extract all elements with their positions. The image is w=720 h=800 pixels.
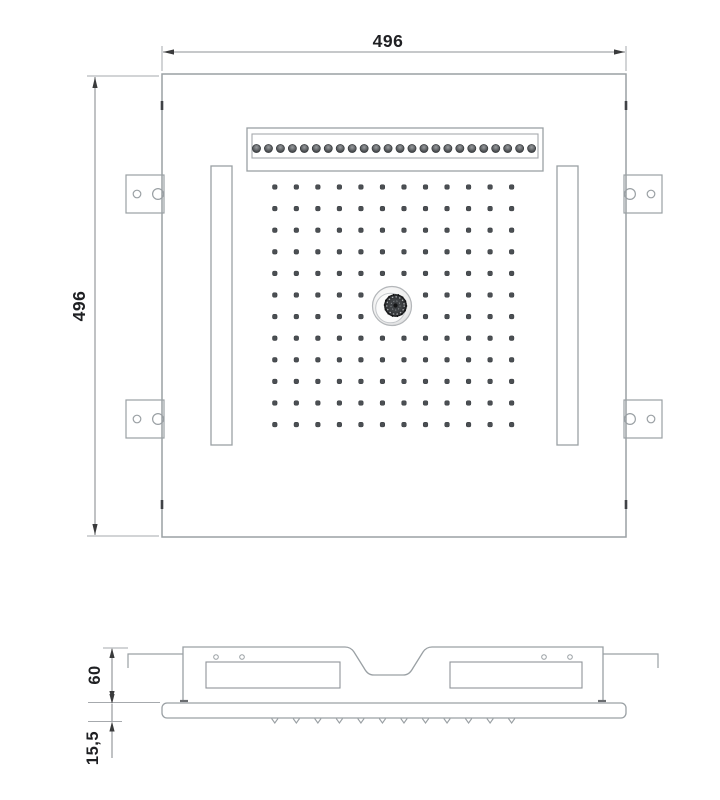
spray-nozzle [445, 271, 450, 276]
tab-hole-icon [647, 190, 655, 198]
waterfall-nozzle [312, 144, 320, 152]
spray-nozzle [337, 250, 342, 255]
spray-nozzle [316, 271, 321, 276]
spray-nozzle [316, 250, 321, 255]
spray-nozzle [294, 293, 299, 298]
spray-nozzle [488, 293, 493, 298]
spray-nozzle [466, 250, 471, 255]
spray-nozzle [466, 185, 471, 190]
spray-nozzle [423, 271, 428, 276]
spray-nozzle [380, 185, 385, 190]
spray-nozzle [445, 293, 450, 298]
spray-nozzle [488, 379, 493, 384]
waterfall-nozzle [384, 144, 392, 152]
spray-nozzle [509, 271, 514, 276]
spray-nozzle [423, 401, 428, 406]
spray-nozzle [402, 271, 407, 276]
spray-nozzle [488, 228, 493, 233]
spray-nozzle [294, 379, 299, 384]
spray-nozzle [402, 250, 407, 255]
spray-nozzle [402, 422, 407, 427]
side-nozzle-tick [422, 719, 428, 724]
waterfall-nozzle [264, 144, 272, 152]
waterfall-nozzle [348, 144, 356, 152]
spray-nozzle [445, 206, 450, 211]
waterfall-bar [247, 128, 543, 171]
spray-nozzle [488, 206, 493, 211]
spray-nozzle [337, 336, 342, 341]
spray-nozzle [488, 401, 493, 406]
waterfall-nozzle [396, 144, 404, 152]
spray-nozzle [316, 422, 321, 427]
spray-nozzle [466, 358, 471, 363]
spray-nozzle [316, 336, 321, 341]
spray-nozzle [488, 185, 493, 190]
side-nozzle-tick [272, 719, 278, 724]
waterfall-nozzle [252, 144, 260, 152]
spray-nozzle [380, 358, 385, 363]
side-nozzle-tick [465, 719, 471, 724]
spray-nozzle [423, 206, 428, 211]
dimension-plate-thickness: 15,5 [84, 694, 122, 765]
tab-hole-icon [133, 190, 141, 198]
dim-label-60: 60 [86, 665, 104, 684]
spray-nozzle [273, 422, 278, 427]
spray-nozzle [445, 185, 450, 190]
side-nozzle-tick [401, 719, 407, 724]
spray-nozzle [509, 336, 514, 341]
side-nozzle-ticks [272, 719, 515, 724]
spray-nozzle [380, 228, 385, 233]
spray-nozzle [423, 314, 428, 319]
spray-nozzle [402, 336, 407, 341]
spray-nozzle [294, 422, 299, 427]
spray-nozzle [273, 336, 278, 341]
waterfall-nozzle [288, 144, 296, 152]
arrow-up-icon [92, 77, 97, 88]
waterfall-nozzle [276, 144, 284, 152]
arrow-down-icon [92, 524, 97, 535]
dimension-top-width: 496 [162, 31, 626, 71]
spray-nozzle [294, 206, 299, 211]
dimension-housing-height: 60 [86, 648, 160, 703]
spray-nozzle [316, 358, 321, 363]
waterfall-nozzle [516, 144, 524, 152]
spray-nozzle [488, 358, 493, 363]
led-strip-right [557, 166, 578, 445]
waterfall-nozzle [432, 144, 440, 152]
side-nozzle-tick [358, 719, 364, 724]
spray-nozzle [337, 314, 342, 319]
spray-nozzle [359, 228, 364, 233]
spray-nozzle [466, 379, 471, 384]
spray-nozzle [380, 336, 385, 341]
side-nozzle-tick [379, 719, 385, 724]
spray-nozzle [380, 401, 385, 406]
spray-nozzle [423, 228, 428, 233]
waterfall-nozzle [420, 144, 428, 152]
dim-label-height: 496 [69, 291, 89, 322]
spray-nozzle [423, 379, 428, 384]
spray-nozzle [488, 314, 493, 319]
spray-nozzle [509, 293, 514, 298]
spray-nozzle [488, 250, 493, 255]
spray-nozzle [466, 293, 471, 298]
spray-nozzle [488, 422, 493, 427]
spray-nozzle [294, 250, 299, 255]
spray-nozzle [402, 358, 407, 363]
arrow-right-icon [614, 49, 625, 54]
spray-nozzle [294, 228, 299, 233]
dim-label-width: 496 [373, 31, 404, 51]
spray-nozzle [294, 185, 299, 190]
housing-window-left [206, 662, 340, 688]
spray-nozzle [445, 314, 450, 319]
waterfall-nozzle [408, 144, 416, 152]
waterfall-nozzle [528, 144, 536, 152]
waterfall-nozzle [372, 144, 380, 152]
dim-label-15-5: 15,5 [84, 731, 102, 765]
spray-nozzle [337, 271, 342, 276]
spray-nozzle [273, 379, 278, 384]
spray-nozzle [359, 206, 364, 211]
waterfall-nozzle [360, 144, 368, 152]
side-nozzle-tick [487, 719, 493, 724]
spray-nozzle [380, 379, 385, 384]
spray-nozzle [402, 379, 407, 384]
arrow-up-icon [109, 648, 114, 658]
tab-hole-icon [133, 415, 141, 423]
spray-nozzle [509, 379, 514, 384]
spray-nozzle [359, 250, 364, 255]
spray-nozzle [316, 228, 321, 233]
flange-right [603, 654, 658, 668]
spray-nozzle [359, 379, 364, 384]
spray-nozzle [359, 314, 364, 319]
waterfall-nozzle [504, 144, 512, 152]
spray-nozzle [380, 250, 385, 255]
spray-nozzle [466, 206, 471, 211]
housing-body [183, 647, 603, 702]
spray-nozzle [337, 422, 342, 427]
spray-nozzle [273, 401, 278, 406]
waterfall-nozzle [336, 144, 344, 152]
spray-nozzle [445, 401, 450, 406]
spray-nozzle [316, 185, 321, 190]
housing-window-right [450, 662, 582, 688]
mounting-tab-top-left [126, 175, 164, 213]
side-nozzle-tick [293, 719, 299, 724]
spray-nozzle [423, 336, 428, 341]
spray-nozzle [423, 422, 428, 427]
spray-nozzle [337, 185, 342, 190]
spray-nozzle [337, 293, 342, 298]
waterfall-nozzle [300, 144, 308, 152]
spray-nozzle [466, 314, 471, 319]
spray-nozzle [316, 293, 321, 298]
spray-nozzle [273, 185, 278, 190]
knob-center-dot [393, 303, 397, 307]
tab-hole-icon [647, 415, 655, 423]
waterfall-nozzle [468, 144, 476, 152]
waterfall-nozzle [456, 144, 464, 152]
spray-nozzle [380, 271, 385, 276]
spray-nozzle [273, 293, 278, 298]
spray-nozzle [509, 228, 514, 233]
spray-nozzle [273, 250, 278, 255]
spray-nozzle [273, 314, 278, 319]
top-view: 496 496 [69, 31, 662, 537]
spray-nozzle [316, 206, 321, 211]
spray-nozzle [402, 228, 407, 233]
spray-nozzle [359, 358, 364, 363]
side-nozzle-tick [315, 719, 321, 724]
spray-nozzle [337, 358, 342, 363]
spray-nozzle [445, 379, 450, 384]
spray-nozzle [509, 250, 514, 255]
drawing-canvas: 496 496 [0, 0, 720, 800]
arrow-up-icon [109, 722, 114, 732]
spray-nozzle [445, 422, 450, 427]
spray-nozzle [466, 271, 471, 276]
spray-nozzle [337, 379, 342, 384]
spray-nozzle [273, 206, 278, 211]
spray-nozzle [337, 206, 342, 211]
flange-left [128, 654, 183, 668]
spray-nozzle [445, 336, 450, 341]
spray-nozzle [402, 401, 407, 406]
spray-nozzle [294, 336, 299, 341]
face-plate [162, 703, 626, 718]
spray-nozzle [423, 250, 428, 255]
spray-nozzle [509, 206, 514, 211]
side-nozzle-tick [336, 719, 342, 724]
spray-nozzle [359, 422, 364, 427]
spray-nozzle [509, 314, 514, 319]
spray-nozzle [294, 358, 299, 363]
spray-nozzle [488, 336, 493, 341]
mounting-tab-top-right [624, 175, 662, 213]
spray-nozzle [316, 379, 321, 384]
spray-nozzle [509, 422, 514, 427]
spray-nozzle [316, 401, 321, 406]
spray-nozzle [445, 250, 450, 255]
side-nozzle-tick [508, 719, 514, 724]
spray-nozzle [273, 358, 278, 363]
waterfall-nozzle [492, 144, 500, 152]
spray-nozzle [316, 314, 321, 319]
spray-nozzle [359, 401, 364, 406]
spray-nozzle [466, 228, 471, 233]
spray-nozzle [337, 228, 342, 233]
spray-nozzle [359, 336, 364, 341]
dimension-left-height: 496 [69, 76, 159, 536]
waterfall-nozzle [444, 144, 452, 152]
spray-nozzle [273, 271, 278, 276]
spray-nozzle [466, 336, 471, 341]
center-knob [373, 287, 412, 326]
spray-nozzle [359, 185, 364, 190]
spray-nozzle [466, 422, 471, 427]
technical-drawing: 496 496 [0, 0, 720, 800]
spray-nozzle [423, 185, 428, 190]
side-nozzle-tick [444, 719, 450, 724]
spray-nozzle [488, 271, 493, 276]
spray-nozzle [466, 401, 471, 406]
spray-nozzle [445, 228, 450, 233]
spray-nozzle [359, 293, 364, 298]
spray-nozzle [359, 271, 364, 276]
spray-nozzle [402, 206, 407, 211]
led-strip-left [211, 166, 232, 445]
spray-nozzle [423, 293, 428, 298]
arrow-left-icon [163, 49, 174, 54]
spray-nozzle [273, 228, 278, 233]
mounting-tab-bottom-left [126, 400, 164, 438]
spray-nozzle [402, 185, 407, 190]
side-view: 60 15,5 [84, 647, 658, 765]
housing-screw-holes [214, 655, 573, 660]
spray-nozzle [294, 271, 299, 276]
spray-nozzle [294, 401, 299, 406]
waterfall-nozzle [324, 144, 332, 152]
spray-nozzle [294, 314, 299, 319]
mounting-tab-bottom-right [624, 400, 662, 438]
spray-nozzle [423, 358, 428, 363]
spray-nozzle [509, 401, 514, 406]
spray-nozzle [337, 401, 342, 406]
spray-nozzle [445, 358, 450, 363]
waterfall-nozzle [480, 144, 488, 152]
spray-nozzle [380, 206, 385, 211]
spray-nozzle [380, 422, 385, 427]
spray-nozzle [509, 358, 514, 363]
spray-nozzle [509, 185, 514, 190]
